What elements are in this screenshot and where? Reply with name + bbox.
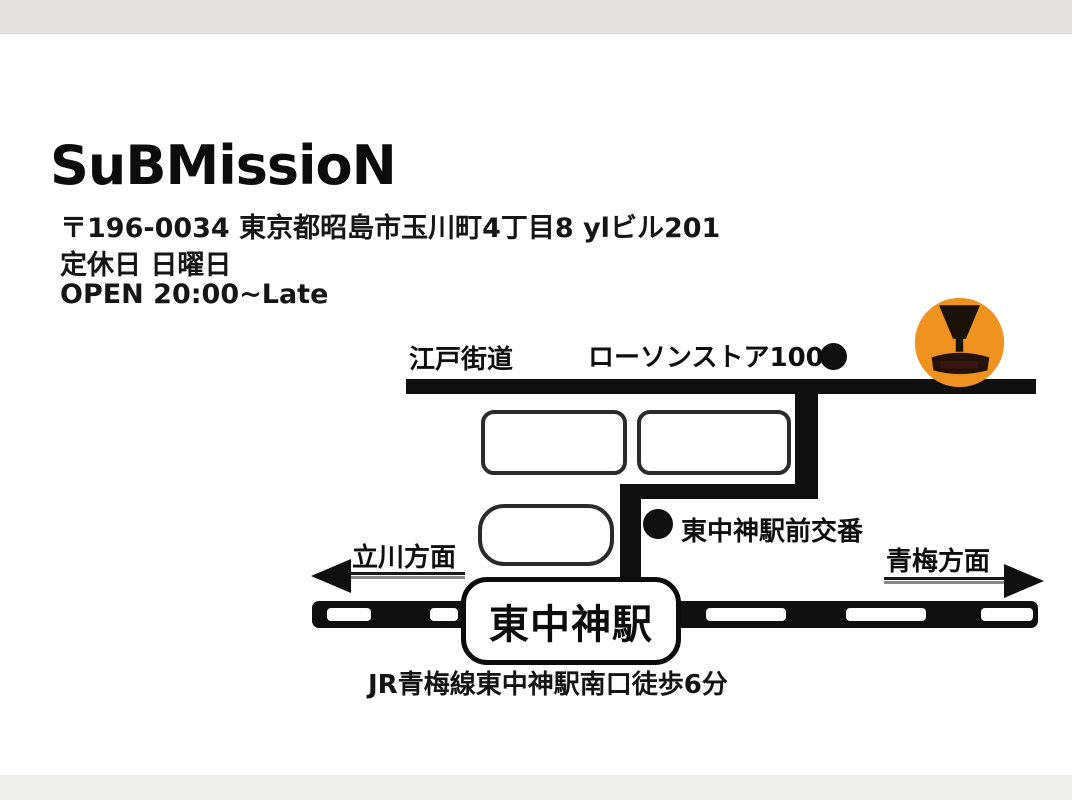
- shop-access-card: SuBMissioN 〒196-0034 東京都昭島市玉川町4丁目8 ylビル2…: [0, 0, 1072, 800]
- direction-tachikawa-line: [347, 572, 465, 579]
- shop-title: SuBMissioN: [50, 134, 396, 197]
- road-name-label: 江戸街道: [409, 339, 513, 376]
- police-box-label: 東中神駅前交番: [681, 511, 863, 548]
- shop-address: 〒196-0034 東京都昭島市玉川町4丁目8 ylビル201: [60, 206, 720, 245]
- building-block-3: [478, 504, 614, 566]
- direction-ome-line: [884, 577, 1008, 584]
- railway-tie: [706, 608, 786, 621]
- direction-ome-label: 青梅方面: [886, 541, 990, 578]
- top-gray-band: [0, 0, 1072, 34]
- arrow-left-icon: [311, 559, 351, 593]
- police-box-marker-dot: [643, 509, 673, 539]
- bottom-gray-band: [0, 775, 1072, 800]
- railway-tie: [981, 608, 1033, 621]
- lawson-marker-dot: [820, 343, 847, 370]
- closed-days: 定休日 日曜日: [60, 243, 231, 282]
- venue-logo-goblet-icon: [913, 296, 1006, 389]
- railway-tie: [846, 608, 926, 621]
- walking-access-note: JR青梅線東中神駅南口徒歩6分: [368, 664, 728, 701]
- railway-tie: [327, 608, 371, 621]
- branch-road-vertical-right: [795, 390, 818, 493]
- branch-road-jog: [620, 484, 818, 499]
- station-name-label: 東中神駅: [489, 592, 653, 650]
- station-box: 東中神駅: [461, 577, 681, 665]
- building-block-1: [481, 410, 627, 475]
- arrow-right-icon: [1004, 564, 1044, 598]
- lawson-store-label: ローソンストア100: [588, 337, 824, 374]
- railway-tie: [430, 608, 458, 621]
- direction-tachikawa-label: 立川方面: [352, 537, 456, 574]
- building-block-2: [637, 410, 791, 475]
- opening-hours: OPEN 20:00~Late: [60, 279, 328, 310]
